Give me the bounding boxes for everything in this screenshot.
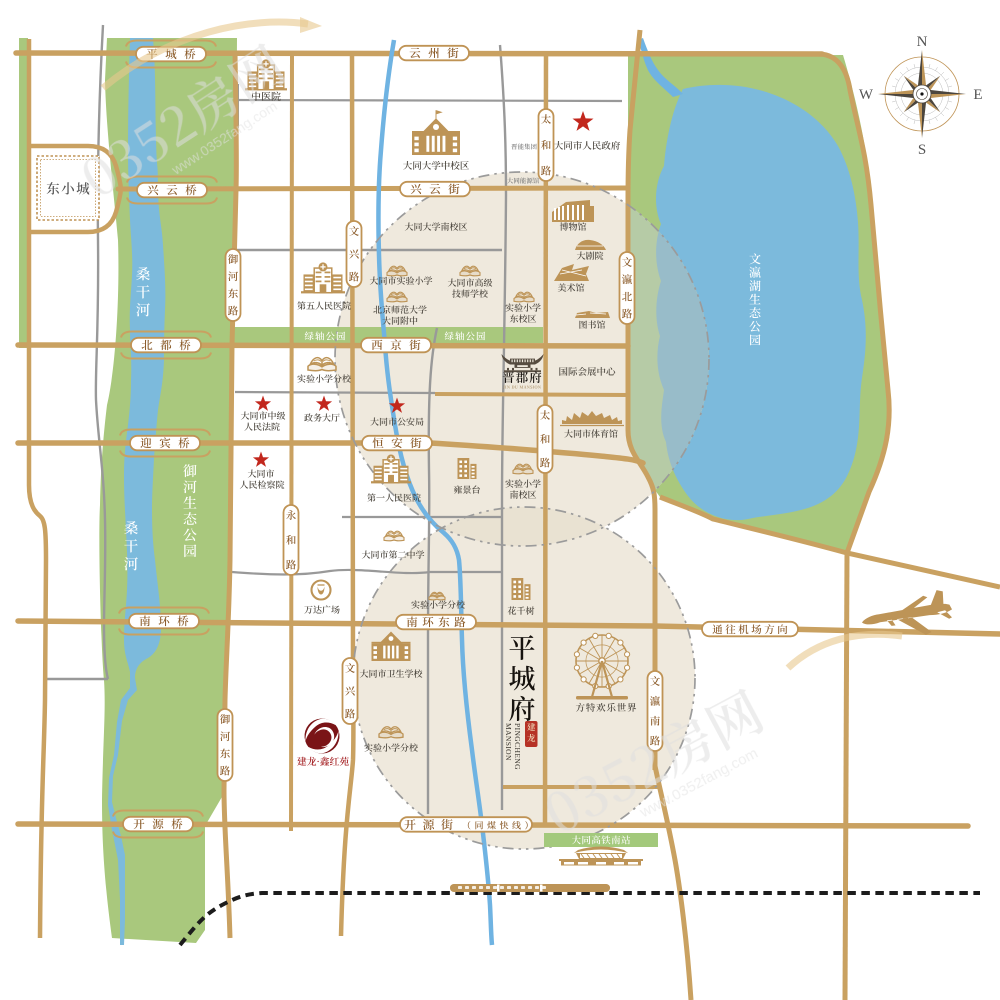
svg-text:W: W xyxy=(859,87,874,103)
svg-text:PINGCHENG: PINGCHENG xyxy=(513,723,522,770)
svg-text:S: S xyxy=(918,142,926,158)
svg-text:E: E xyxy=(973,87,982,103)
svg-text:MANSION: MANSION xyxy=(504,723,513,761)
svg-text:N: N xyxy=(917,34,928,50)
